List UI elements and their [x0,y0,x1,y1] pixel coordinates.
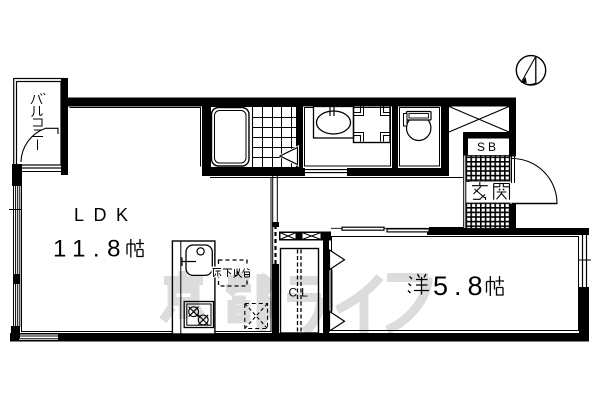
svg-text:LDK: LDK [74,205,138,225]
svg-text:SB: SB [477,140,499,154]
svg-text:11.8: 11.8 [53,236,128,263]
svg-text:5.8: 5.8 [433,271,489,301]
